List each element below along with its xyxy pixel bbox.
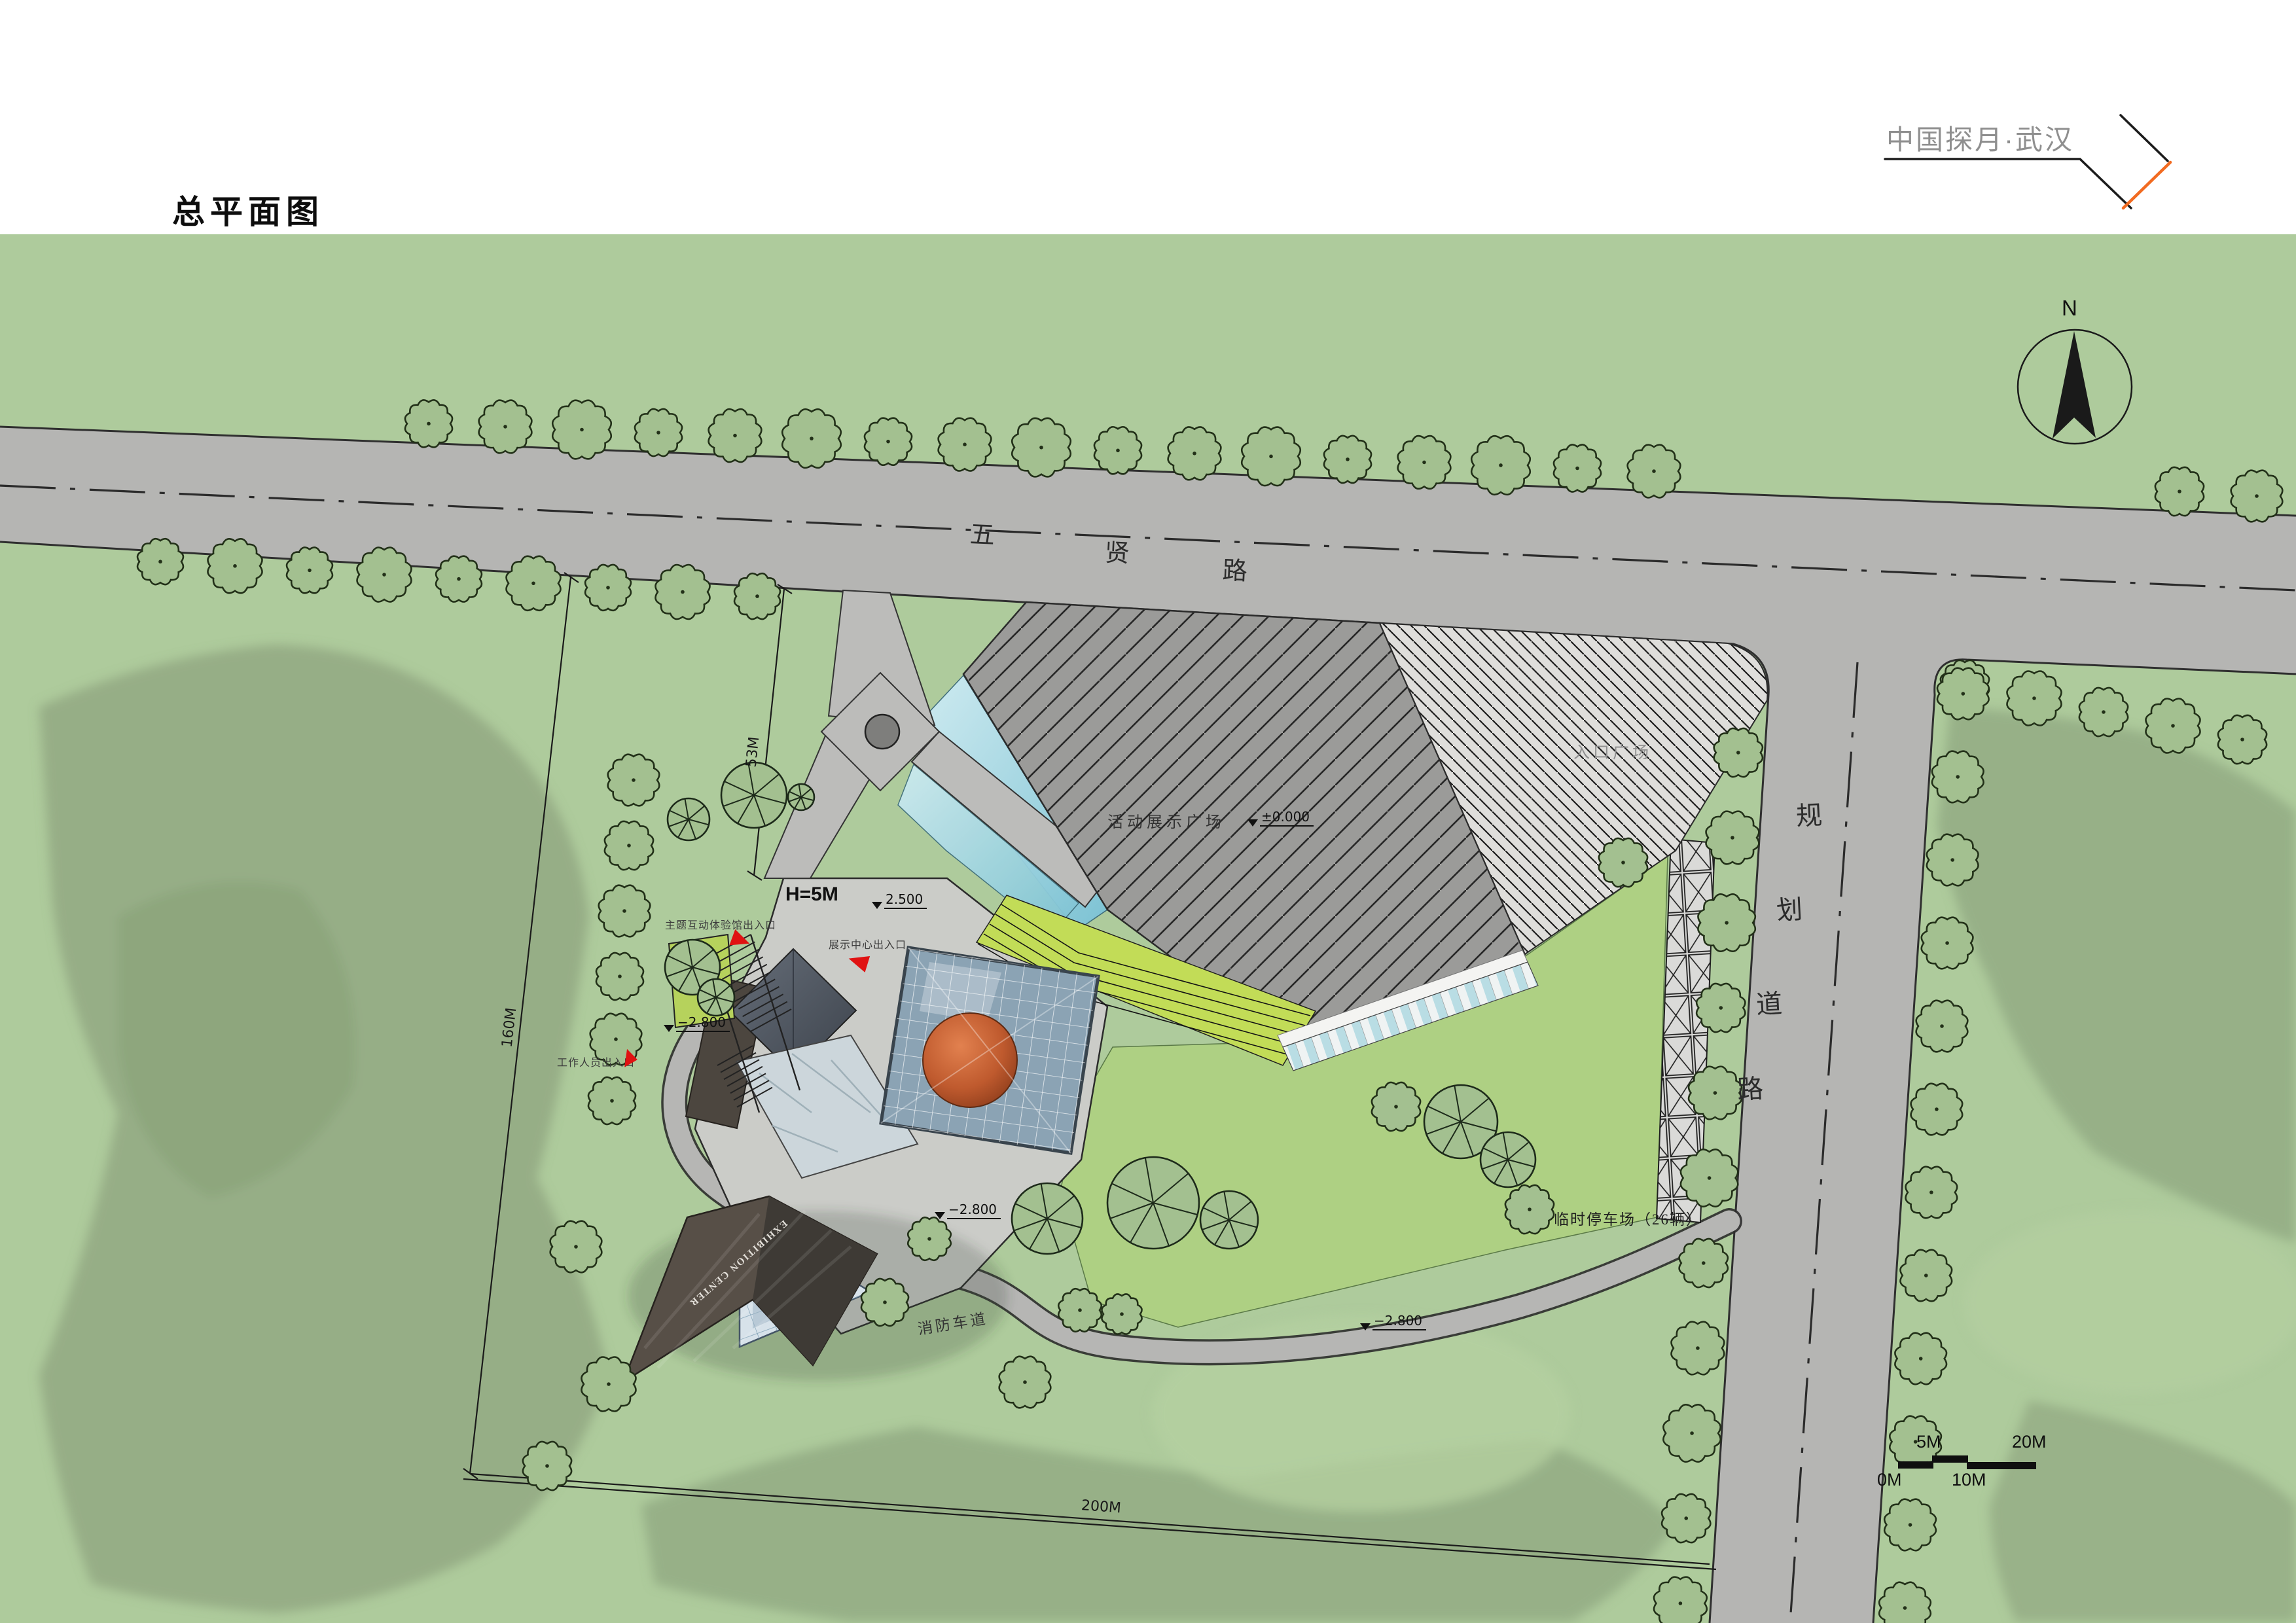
entry-plaza-label: 入口广场 — [1573, 740, 1652, 763]
staff-entrance-arrow-icon — [624, 1049, 639, 1069]
walkway-feature-circle — [865, 715, 899, 749]
north-label: N — [2062, 296, 2077, 321]
elevation-marker-icon — [935, 1212, 945, 1219]
parking-label: 临时停车场（26辆） — [1554, 1207, 1702, 1229]
theme-hall-entrance-label: 主题互动体验馆出入口 — [665, 916, 776, 932]
height-note: H=5M — [785, 883, 838, 906]
exhibition-center-entrance-label: 展示中心出入口 — [829, 936, 906, 952]
scale-5m: 5M — [1916, 1432, 1941, 1452]
elevation-marker-icon — [664, 1025, 674, 1032]
page-title: 总平面图 — [172, 186, 324, 233]
elevation-minus2800-west: −2.800 — [664, 1014, 730, 1032]
dimension-north: 53M — [744, 736, 763, 768]
scale-10m: 10M — [1952, 1470, 1986, 1490]
elevation-marker-icon — [1247, 819, 1258, 827]
road-wuxian-char-3: 路 — [1222, 550, 1248, 587]
elevation-marker-icon — [1360, 1323, 1371, 1330]
elevation-2500: 2.500 — [872, 891, 927, 909]
building-glass-cube — [881, 948, 1098, 1153]
elevation-minus2800-south: −2.800 — [935, 1202, 1001, 1219]
activity-plaza-label: 活动展示广场 — [1107, 809, 1225, 832]
road-planned-char-1: 规 — [1795, 794, 1823, 833]
road-planned-char-4: 路 — [1736, 1067, 1765, 1107]
elevation-zero: ±0.000 — [1247, 809, 1314, 827]
road-wuxian-char-2: 贤 — [1104, 532, 1130, 569]
moon-sphere — [923, 1013, 1017, 1107]
road-planned-char-3: 道 — [1755, 982, 1784, 1022]
elevation-marker-icon — [872, 902, 882, 909]
road-planned-char-2: 划 — [1776, 888, 1804, 927]
siteplan-page: 总平面图 中国探月·武汉 五 贤 路 规 划 道 路 活动展示广场 入口广场 临… — [0, 0, 2296, 1623]
road-wuxian-char-1: 五 — [969, 514, 996, 551]
logo-text: 中国探月·武汉 — [1886, 118, 2074, 158]
elevation-minus2800-lane: −2.800 — [1360, 1313, 1426, 1330]
dimension-south: 200M — [1081, 1497, 1122, 1516]
staff-entrance-label: 工作人员出入口 — [557, 1054, 635, 1069]
scale-20m: 20M — [2012, 1432, 2047, 1452]
scale-0m: 0M — [1877, 1470, 1902, 1490]
